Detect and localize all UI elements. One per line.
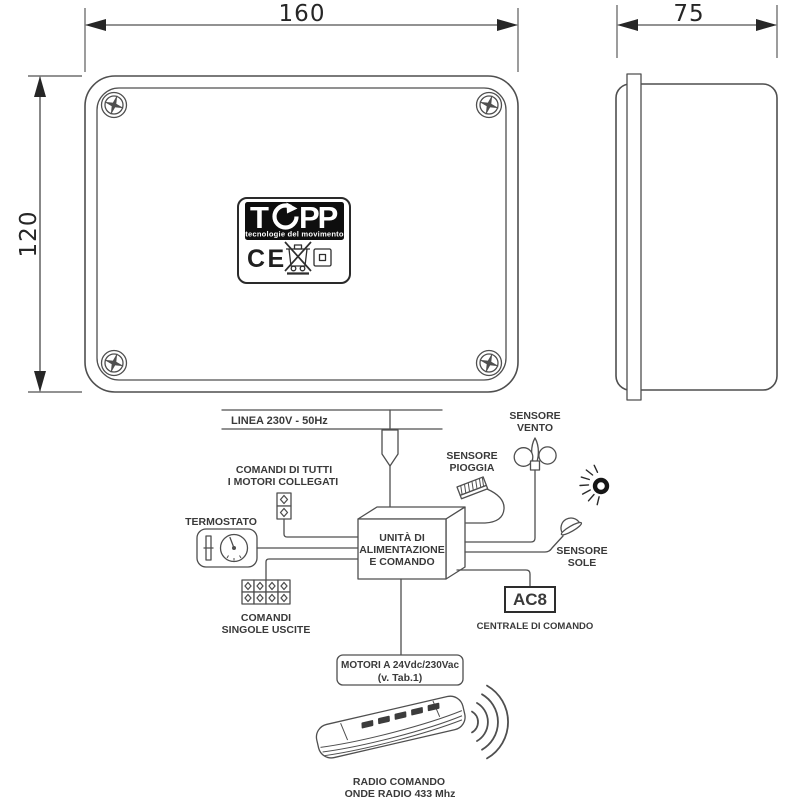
wind-sensor-label-2: VENTO <box>517 422 553 434</box>
sun-icon <box>580 465 607 504</box>
unit-label-1: UNITÀ DI <box>379 531 425 544</box>
dim-height-value: 120 <box>16 211 42 258</box>
dim-depth-value: 75 <box>673 1 704 27</box>
screw-icon <box>101 92 127 118</box>
mounting-flange <box>627 74 641 400</box>
connector-2way-icon <box>277 493 291 519</box>
connection-diagram: LINEA 230V - 50Hz COMANDI DI TUTTI I MOT… <box>185 410 608 800</box>
side-view <box>616 74 777 400</box>
rain-sensor-icon <box>457 477 488 499</box>
ac8-label: AC8 <box>513 590 547 609</box>
ce-mark-text: CE <box>247 245 287 273</box>
power-command-unit: UNITÀ DI ALIMENTAZIONE E COMANDO <box>358 507 465 579</box>
sun-sensor-icon <box>556 514 583 537</box>
arrowhead-icon <box>34 371 46 392</box>
arrowhead-icon <box>497 19 518 31</box>
arrowhead-icon <box>756 19 777 31</box>
radio-remote: RADIO COMANDO ONDE RADIO 433 Mhz <box>314 686 508 800</box>
thermostat-icon <box>197 529 257 567</box>
sun-sensor-label-2: SOLE <box>568 557 597 569</box>
wind-sensor-icon <box>514 438 556 470</box>
wind-sensor-label-1: SENSORE <box>509 410 560 422</box>
sun-sensor-label-1: SENSORE <box>556 545 607 557</box>
connector-8way-icon <box>242 580 290 604</box>
arrowhead-icon <box>617 19 638 31</box>
radio-label-2: ONDE RADIO 433 Mhz <box>345 788 456 800</box>
remote-control-icon <box>314 694 468 761</box>
power-line-label: LINEA 230V - 50Hz <box>231 415 328 427</box>
rain-sensor-label-2: PIOGGIA <box>450 462 495 474</box>
single-outputs-label-1: COMANDI <box>241 612 291 624</box>
screw-icon <box>101 350 127 376</box>
dim-width-value: 160 <box>279 1 326 27</box>
technical-drawing: T PP tecnologie del movimento CE <box>0 0 800 800</box>
thermostat-label: TERMOSTATO <box>185 516 257 528</box>
all-motors-label-1: COMANDI DI TUTTI <box>236 464 332 476</box>
all-motors-label-2: I MOTORI COLLEGATI <box>228 476 339 488</box>
technical-drawing-page: T PP tecnologie del movimento CE <box>0 0 800 800</box>
rain-sensor-label-1: SENSORE <box>446 450 497 462</box>
motors-output: MOTORI A 24Vdc/230Vac (v. Tab.1) <box>337 579 463 685</box>
dim-width: 160 <box>85 1 518 72</box>
motors-label-2: (v. Tab.1) <box>378 672 423 684</box>
single-outputs-command: COMANDI SINGOLE USCITE <box>222 559 358 636</box>
dim-depth: 75 <box>617 1 777 58</box>
radio-waves-icon <box>472 686 508 759</box>
ac8-control-unit: AC8 CENTRALE DI COMANDO <box>457 570 593 632</box>
screw-icon <box>476 92 502 118</box>
sun-sensor: SENSORE SOLE <box>465 514 608 569</box>
wind-sensor: SENSORE VENTO <box>465 410 561 542</box>
product-label: T PP tecnologie del movimento CE <box>238 198 350 283</box>
brand-tagline: tecnologie del movimento <box>245 230 344 239</box>
central-command-label: CENTRALE DI COMANDO <box>477 621 594 632</box>
dim-height: 120 <box>16 76 82 392</box>
power-plug-icon <box>382 430 398 466</box>
unit-label-2: ALIMENTAZIONE <box>359 544 445 556</box>
arrowhead-icon <box>85 19 106 31</box>
arrowhead-icon <box>34 76 46 97</box>
radio-label-1: RADIO COMANDO <box>353 776 445 788</box>
single-outputs-label-2: SINGOLE USCITE <box>222 624 311 636</box>
front-view: T PP tecnologie del movimento CE <box>85 76 518 392</box>
unit-label-3: E COMANDO <box>369 556 434 568</box>
motors-label-1: MOTORI A 24Vdc/230Vac <box>341 660 459 671</box>
screw-icon <box>476 350 502 376</box>
